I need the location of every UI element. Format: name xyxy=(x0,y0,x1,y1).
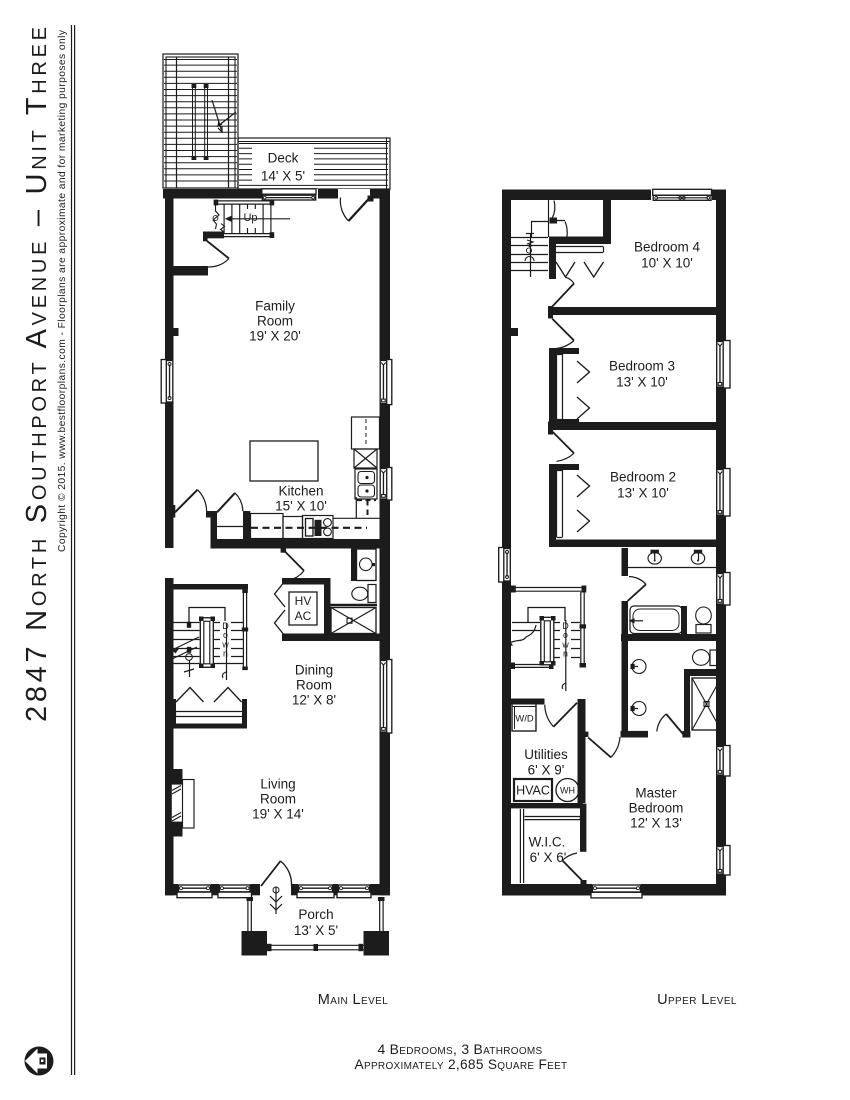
svg-text:Up: Up xyxy=(243,212,257,224)
svg-text:12' X 13': 12' X 13' xyxy=(630,816,682,831)
svg-text:HVAC: HVAC xyxy=(516,784,550,798)
svg-text:Bedroom 2: Bedroom 2 xyxy=(610,470,676,485)
svg-text:Approximately 2,685 Square Fee: Approximately 2,685 Square Feet xyxy=(355,1057,568,1072)
svg-text:Room: Room xyxy=(260,792,296,807)
svg-text:12' X 8': 12' X 8' xyxy=(292,693,336,708)
svg-text:Dining: Dining xyxy=(295,663,333,678)
svg-text:Bedroom: Bedroom xyxy=(629,801,684,816)
svg-text:6' X 6': 6' X 6' xyxy=(530,850,567,865)
svg-text:4 Bedrooms, 3 Bathrooms: 4 Bedrooms, 3 Bathrooms xyxy=(377,1041,542,1057)
svg-text:Bedroom 3: Bedroom 3 xyxy=(609,359,675,374)
svg-text:2847 North Southport Avenue –: 2847 North Southport Avenue – Unit Three xyxy=(21,27,53,722)
svg-text:Upper Level: Upper Level xyxy=(657,992,737,1008)
svg-text:Deck: Deck xyxy=(268,151,299,166)
svg-text:W/D: W/D xyxy=(515,714,534,725)
svg-text:13' X 5': 13' X 5' xyxy=(294,923,338,938)
svg-text:Master: Master xyxy=(635,786,677,801)
svg-text:Porch: Porch xyxy=(298,907,333,922)
svg-text:n: n xyxy=(223,649,228,659)
svg-text:Main Level: Main Level xyxy=(318,992,388,1008)
svg-text:Room: Room xyxy=(296,678,332,693)
svg-text:10' X 10': 10' X 10' xyxy=(641,256,693,271)
svg-text:Bedroom 4: Bedroom 4 xyxy=(634,240,701,255)
svg-text:19' X 14': 19' X 14' xyxy=(252,807,304,822)
svg-text:AC: AC xyxy=(295,609,312,623)
svg-text:W.I.C.: W.I.C. xyxy=(529,835,566,850)
svg-text:HV: HV xyxy=(295,594,312,608)
svg-text:WH: WH xyxy=(560,786,575,796)
svg-text:Room: Room xyxy=(257,314,293,329)
svg-text:13' X 10': 13' X 10' xyxy=(616,375,668,390)
svg-text:Living: Living xyxy=(260,777,295,792)
svg-text:Family: Family xyxy=(255,299,295,314)
svg-text:15' X 10': 15' X 10' xyxy=(275,499,327,514)
svg-text:6' X 9': 6' X 9' xyxy=(528,763,565,778)
svg-text:Copyright © 2015. www.bestfloo: Copyright © 2015. www.bestfloorplans.com… xyxy=(57,29,68,552)
svg-text:14' X 5': 14' X 5' xyxy=(261,169,305,184)
svg-text:19' X 20': 19' X 20' xyxy=(249,329,301,344)
svg-text:13' X 10': 13' X 10' xyxy=(617,486,669,501)
svg-text:Kitchen: Kitchen xyxy=(278,484,323,499)
svg-text:Utilities: Utilities xyxy=(524,747,568,762)
